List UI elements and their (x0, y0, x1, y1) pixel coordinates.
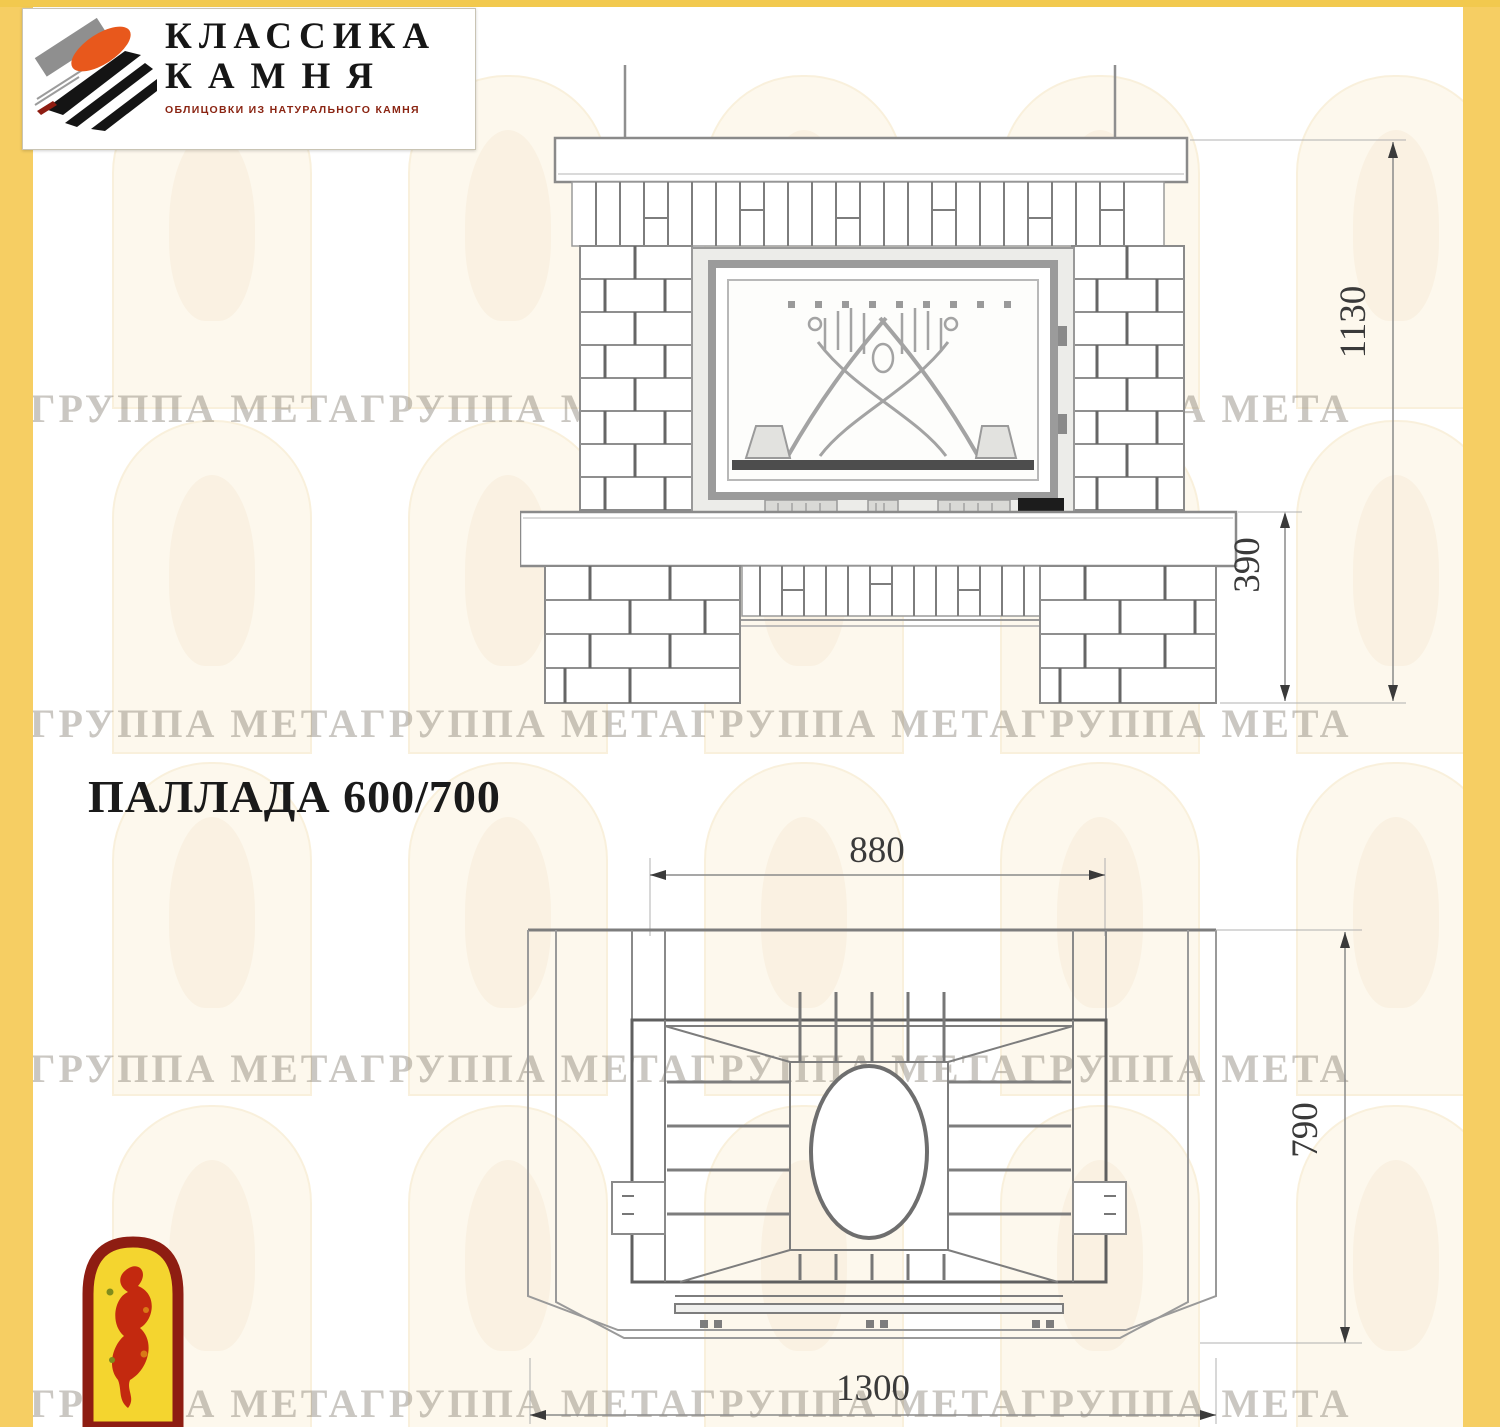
air-vent-dots (788, 301, 1011, 308)
frieze-soldier-course (572, 182, 1164, 246)
plinth-right-masonry (1040, 566, 1216, 703)
page: ГРУППА МЕТАГРУППА МЕТАГРУППА МЕТАГРУППА … (0, 0, 1500, 1427)
meta-arch-emblem-icon (78, 1232, 188, 1427)
hearth-shelf (520, 512, 1236, 566)
plinth-left-masonry (545, 566, 740, 703)
dim-total-width-label: 1300 (836, 1368, 910, 1409)
side-bracket (612, 1182, 665, 1234)
dimension-1300: 1300 (530, 1358, 1216, 1424)
right-brick-pilaster (1072, 246, 1184, 510)
logo-tagline: ОБЛИЦОВКИ ИЗ НАТУРАЛЬНОГО КАМНЯ (165, 104, 436, 116)
firebox-insert (692, 248, 1074, 514)
side-bracket (1073, 1182, 1126, 1234)
dim-total-height-label: 1130 (1333, 286, 1374, 359)
logo-title-line2: КАМНЯ (165, 57, 436, 97)
left-brick-pilaster (580, 246, 692, 510)
dimension-1130: 1130 (1190, 140, 1406, 703)
logo-title-line1: КЛАССИКА (165, 17, 436, 57)
product-title: ПАЛЛАДА 600/700 (88, 770, 501, 823)
dim-plinth-height-label: 390 (1227, 537, 1268, 593)
dim-depth-label: 790 (1285, 1102, 1326, 1158)
flue-outlet-circle (811, 1066, 927, 1238)
plan-view-drawing: 880 (500, 830, 1420, 1427)
page-edge-right (1463, 0, 1500, 1427)
plinth-center-soldier-band (730, 566, 1054, 626)
door-latch (1058, 326, 1067, 346)
brand-mark-icon (29, 13, 161, 139)
dimension-880: 880 (650, 830, 1105, 936)
page-edge-left (0, 0, 33, 1427)
dimension-790: 790 (1200, 930, 1362, 1343)
door-latch (1058, 414, 1067, 434)
logo-text: КЛАССИКА КАМНЯ ОБЛИЦОВКИ ИЗ НАТУРАЛЬНОГО… (165, 17, 436, 116)
front-rail (675, 1304, 1063, 1313)
company-logo: КЛАССИКА КАМНЯ ОБЛИЦОВКИ ИЗ НАТУРАЛЬНОГО… (22, 8, 476, 150)
page-edge-top (0, 0, 1500, 7)
mantel-shelf (555, 138, 1187, 182)
dimension-390: 390 (1227, 512, 1302, 701)
insert-feet (700, 1320, 1054, 1328)
front-elevation-drawing: 1130 390 (520, 60, 1440, 720)
dim-firebox-width-label: 880 (849, 830, 905, 871)
firebox-insert-plan (612, 992, 1126, 1328)
